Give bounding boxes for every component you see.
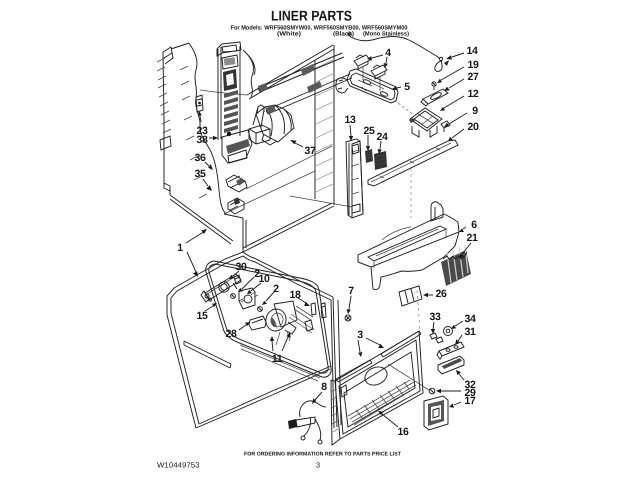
svg-text:35: 35 xyxy=(195,168,206,180)
svg-text:34: 34 xyxy=(465,313,476,325)
svg-text:13: 13 xyxy=(345,114,356,126)
svg-text:12: 12 xyxy=(468,88,479,100)
svg-text:6: 6 xyxy=(471,219,477,231)
svg-text:25: 25 xyxy=(364,125,375,137)
svg-text:38: 38 xyxy=(197,134,208,146)
svg-text:9: 9 xyxy=(472,105,478,117)
svg-text:18: 18 xyxy=(290,289,301,301)
svg-text:36: 36 xyxy=(195,152,206,164)
svg-text:7: 7 xyxy=(348,285,354,297)
svg-text:20: 20 xyxy=(468,121,479,133)
svg-text:16: 16 xyxy=(398,426,409,438)
svg-text:11: 11 xyxy=(272,353,283,365)
svg-text:8: 8 xyxy=(321,381,327,393)
svg-text:14: 14 xyxy=(467,45,478,57)
svg-text:(White): (White) xyxy=(277,31,301,38)
svg-text:5: 5 xyxy=(404,81,410,93)
svg-text:W10449753: W10449753 xyxy=(157,461,200,470)
svg-text:27: 27 xyxy=(468,71,479,83)
svg-text:21: 21 xyxy=(467,232,478,244)
svg-text:30: 30 xyxy=(236,261,247,273)
svg-text:15: 15 xyxy=(197,310,208,322)
svg-text:For Models: WRF560SMYW00, WRF5: For Models: WRF560SMYW00, WRF560SMYB00, … xyxy=(231,25,409,32)
svg-text:31: 31 xyxy=(465,326,476,338)
svg-text:26: 26 xyxy=(436,288,447,300)
svg-text:2: 2 xyxy=(273,283,279,295)
svg-text:17: 17 xyxy=(465,395,476,407)
svg-text:37: 37 xyxy=(305,145,316,157)
svg-text:3: 3 xyxy=(316,461,320,470)
svg-text:1: 1 xyxy=(177,242,183,254)
svg-text:4: 4 xyxy=(385,47,391,59)
svg-text:19: 19 xyxy=(468,59,479,71)
svg-text:FOR ORDERING INFORMATION REFER: FOR ORDERING INFORMATION REFER TO PARTS … xyxy=(244,452,402,458)
svg-text:33: 33 xyxy=(430,311,441,323)
svg-text:3: 3 xyxy=(357,329,363,341)
svg-text:LINER PARTS: LINER PARTS xyxy=(271,8,352,24)
svg-text:28: 28 xyxy=(226,328,237,340)
svg-text:10: 10 xyxy=(259,273,270,285)
svg-text:24: 24 xyxy=(377,131,388,143)
